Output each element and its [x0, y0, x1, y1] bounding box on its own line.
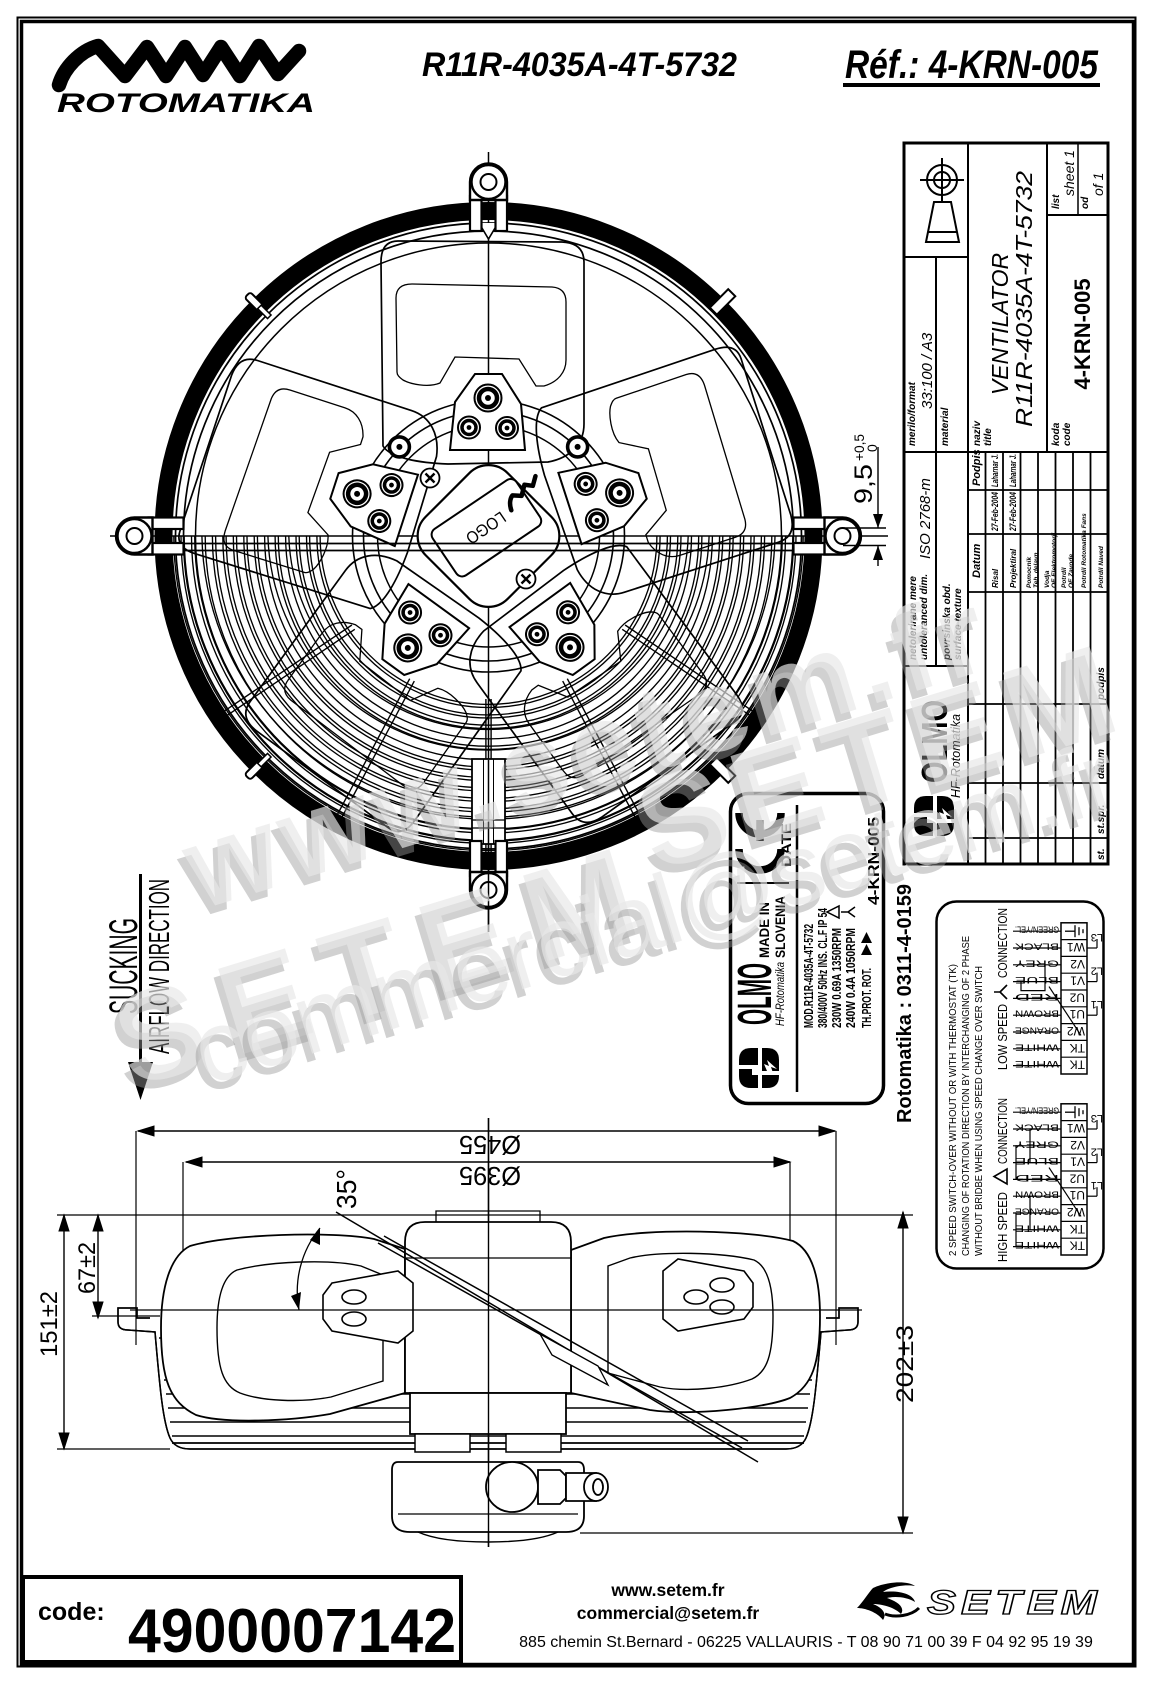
- svg-text:U2: U2: [1069, 1171, 1085, 1185]
- svg-text:ISO 2768-m: ISO 2768-m: [917, 478, 934, 559]
- svg-text:TH.PROT. ROT.: TH.PROT. ROT.: [859, 968, 874, 1028]
- svg-text:BLUE: BLUE: [1015, 1155, 1059, 1166]
- svg-text:www.setem.fr: www.setem.fr: [610, 1580, 724, 1600]
- svg-text:naziv: naziv: [972, 420, 983, 446]
- svg-text:WHITE: WHITE: [1015, 1239, 1059, 1250]
- svg-text:WHITE: WHITE: [1015, 1058, 1059, 1069]
- svg-text:151±2: 151±2: [36, 1291, 63, 1357]
- svg-text:V1: V1: [1070, 1155, 1085, 1169]
- svg-text:CONNECTION: CONNECTION: [996, 908, 1010, 978]
- svg-text:Vodja: Vodja: [1044, 570, 1051, 588]
- svg-text:L3: L3: [1091, 931, 1103, 943]
- svg-text:code:: code:: [38, 1598, 105, 1626]
- svg-text:L2: L2: [1091, 965, 1103, 977]
- svg-text:merilo/format: merilo/format: [907, 381, 918, 446]
- svg-text:material: material: [940, 407, 951, 446]
- svg-text:BLACK: BLACK: [1014, 1122, 1059, 1133]
- svg-text:Laharnar J.: Laharnar J.: [1008, 454, 1018, 487]
- svg-text:4900007142: 4900007142: [128, 1597, 456, 1666]
- svg-text:230W 0.69A 1350RPM: 230W 0.69A 1350RPM: [829, 928, 844, 1028]
- svg-text:W2: W2: [1067, 1205, 1085, 1219]
- svg-text:240W 0.4A 1050RPM: 240W 0.4A 1050RPM: [843, 928, 858, 1028]
- svg-text:Ø455: Ø455: [459, 1130, 521, 1160]
- svg-text:W2: W2: [1067, 1024, 1085, 1038]
- svg-text:L1: L1: [1091, 1179, 1103, 1191]
- svg-text:WHITE: WHITE: [1015, 1041, 1059, 1052]
- svg-text:Potrdil Rotomatika Fans: Potrdil Rotomatika Fans: [1081, 513, 1088, 588]
- svg-text:Potrdil Naved: Potrdil Naved: [1098, 545, 1105, 588]
- svg-text:V2: V2: [1070, 957, 1085, 971]
- svg-text:CONNECTION: CONNECTION: [996, 1098, 1010, 1164]
- svg-text:GREY: GREY: [1014, 1138, 1059, 1149]
- svg-text:Risal: Risal: [991, 568, 1000, 588]
- svg-text:sheet 1: sheet 1: [1061, 150, 1077, 196]
- svg-text:BLACK: BLACK: [1014, 941, 1059, 952]
- svg-text:0: 0: [864, 444, 880, 452]
- svg-text:Podpis: Podpis: [971, 449, 983, 486]
- svg-text:WHITE: WHITE: [1015, 1222, 1059, 1233]
- svg-text:Rotomatika : 0311-4-0159: Rotomatika : 0311-4-0159: [894, 884, 916, 1123]
- svg-text:CHANGING OF ROTATION DIRECTION: CHANGING OF ROTATION DIRECTION BY INTERC…: [960, 936, 972, 1256]
- svg-text:W1: W1: [1067, 940, 1085, 954]
- svg-text:L3: L3: [1091, 1112, 1103, 1124]
- svg-text:GREEN/YEL.: GREEN/YEL.: [1015, 924, 1059, 935]
- svg-text:GREY: GREY: [1014, 957, 1059, 968]
- svg-text:Pomocnik: Pomocnik: [1026, 557, 1033, 588]
- svg-text:TK: TK: [1070, 1239, 1085, 1253]
- svg-text:code: code: [1062, 422, 1073, 446]
- svg-text:U1: U1: [1069, 1007, 1085, 1021]
- svg-text:L2: L2: [1091, 1146, 1103, 1158]
- svg-text:title: title: [983, 428, 994, 446]
- svg-text:MOD.R11R-4035A-4T-5732: MOD.R11R-4035A-4T-5732: [801, 924, 816, 1028]
- svg-text:ROTOMATIKA: ROTOMATIKA: [57, 88, 315, 118]
- svg-text:TK: TK: [1070, 1058, 1085, 1072]
- svg-text:885 chemin St.Bernard - 0622: 885 chemin St.Bernard - 06225 VALLAURIS …: [519, 1634, 1093, 1651]
- svg-text:commercial@setem.fr: commercial@setem.fr: [577, 1603, 760, 1623]
- svg-text:R11R-4035A-4T-5732: R11R-4035A-4T-5732: [1011, 171, 1037, 427]
- svg-text:Teh. delavn: Teh. delavn: [1033, 552, 1040, 588]
- svg-text:VENTILATOR: VENTILATOR: [987, 253, 1013, 395]
- svg-text:Laharnar J.: Laharnar J.: [990, 454, 1000, 487]
- svg-text:9,5: 9,5: [850, 464, 878, 504]
- svg-text:OE Zavode: OE Zavode: [1068, 554, 1075, 588]
- svg-text:W1: W1: [1067, 1121, 1085, 1135]
- svg-text:Potrdil: Potrdil: [1061, 567, 1068, 588]
- svg-text:ORANGE: ORANGE: [1015, 1025, 1059, 1036]
- svg-text:HF-Rotomatika: HF-Rotomatika: [773, 962, 787, 1026]
- svg-text:35°: 35°: [331, 1169, 362, 1209]
- svg-text:Ø395: Ø395: [459, 1161, 521, 1191]
- svg-text:ORANGE: ORANGE: [1015, 1206, 1059, 1217]
- svg-text:LOW SPEED: LOW SPEED: [996, 1004, 1010, 1070]
- svg-text:U1: U1: [1069, 1188, 1085, 1202]
- svg-text:U2: U2: [1069, 990, 1085, 1004]
- svg-text:of 1: of 1: [1090, 173, 1106, 196]
- svg-text:33:100 / A3: 33:100 / A3: [919, 332, 936, 409]
- svg-text:V1: V1: [1070, 974, 1085, 988]
- svg-text:202±3: 202±3: [892, 1325, 919, 1403]
- svg-text:koda: koda: [1051, 422, 1062, 446]
- svg-text:67±2: 67±2: [74, 1242, 101, 1294]
- svg-text:BROWN: BROWN: [1015, 1008, 1059, 1019]
- svg-text:2 SPEED SWITCH-OVER WITHOUT OR: 2 SPEED SWITCH-OVER WITHOUT OR WITH THER…: [947, 964, 959, 1256]
- svg-text:TK: TK: [1070, 1041, 1085, 1055]
- svg-text:V2: V2: [1070, 1138, 1085, 1152]
- svg-text:od: od: [1080, 196, 1091, 209]
- svg-text:WITHOUT BRIDBE WHEN USING SPEE: WITHOUT BRIDBE WHEN USING SPEED CHANGE O…: [973, 966, 985, 1256]
- svg-text:SETEM: SETEM: [927, 1584, 1102, 1622]
- svg-text:4-KRN-005: 4-KRN-005: [1070, 278, 1095, 389]
- svg-text:Réf.: 4-KRN-005: Réf.: 4-KRN-005: [845, 43, 1099, 87]
- svg-text:HIGH SPEED: HIGH SPEED: [996, 1192, 1010, 1262]
- svg-text:R11R-4035A-4T-5732: R11R-4035A-4T-5732: [422, 46, 737, 84]
- svg-text:Projektiral: Projektiral: [1009, 548, 1018, 588]
- svg-text:Datum: Datum: [971, 544, 983, 578]
- svg-text:L1: L1: [1091, 998, 1103, 1010]
- svg-text:27-Feb-2004: 27-Feb-2004: [1008, 492, 1018, 532]
- svg-text:GREEN/YEL.: GREEN/YEL.: [1015, 1105, 1059, 1116]
- svg-text:TK: TK: [1070, 1222, 1085, 1236]
- svg-text:OE Elektromotorji: OE Elektromotorji: [1051, 533, 1058, 588]
- svg-text:st.: st.: [1096, 848, 1107, 860]
- svg-text:27-Feb-2004: 27-Feb-2004: [990, 492, 1000, 532]
- svg-text:BROWN: BROWN: [1015, 1189, 1059, 1200]
